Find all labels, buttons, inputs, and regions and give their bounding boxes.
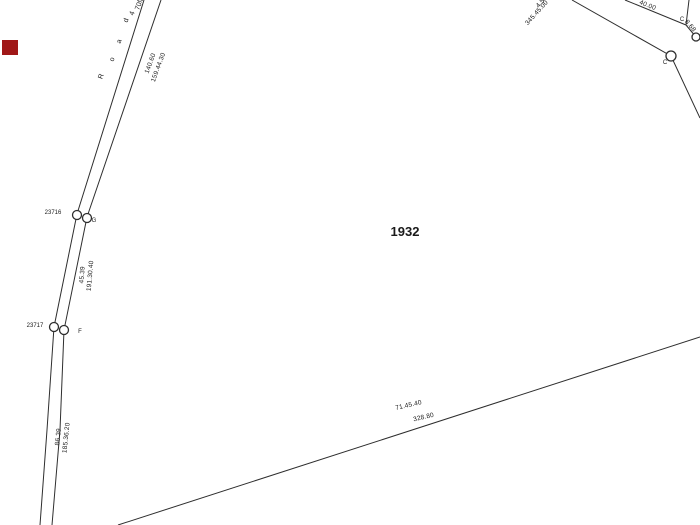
road-name-width-70ft: 70ft xyxy=(134,0,145,11)
survey-monument-circle-f2 xyxy=(60,326,69,335)
survey-monument-circle-g2 xyxy=(83,214,92,223)
plat-map-canvas[interactable]: 1932 R o a d 4 70ft 140.60 159.44.30 45.… xyxy=(0,0,700,525)
top-right-40-line xyxy=(625,0,686,25)
road-name-char-d: d xyxy=(123,17,131,23)
red-corner-marker xyxy=(2,40,18,55)
cadastral-survey-map[interactable]: 1932 R o a d 4 70ft 140.60 159.44.30 45.… xyxy=(0,0,700,525)
parcel-number-label: 1932 xyxy=(391,224,420,239)
point-label-c-upper: C xyxy=(680,17,685,23)
point-label-g: G xyxy=(92,218,97,224)
survey-monument-circle-edge xyxy=(692,33,700,41)
dimension-bottom-bearing: 71.45.40 xyxy=(395,399,423,412)
dimension-topright-short: 8.68 xyxy=(683,19,697,34)
road-name-char-4: 4 xyxy=(129,10,137,16)
dimension-gf-distance: 45.39 xyxy=(78,266,86,284)
road-name-char-o: o xyxy=(109,56,117,62)
monument-id-23716: 23716 xyxy=(45,210,62,216)
survey-monument-circle-g1 xyxy=(73,211,82,220)
point-label-f: F xyxy=(78,329,82,335)
monument-id-23717: 23717 xyxy=(27,323,44,329)
road-name-char-r: R xyxy=(97,73,105,80)
dimension-topright-40: 40.00 xyxy=(638,0,657,12)
point-label-c-lower: C xyxy=(663,60,668,66)
dimension-belowf-bearing: 185.36.20 xyxy=(61,422,71,453)
survey-monument-circle-f1 xyxy=(50,323,59,332)
road-name-char-a: a xyxy=(116,38,124,44)
dimension-bottom-distance: 328.80 xyxy=(413,412,435,424)
survey-monument-circle-c xyxy=(666,51,676,61)
bottom-boundary-line xyxy=(118,337,700,525)
dimension-gf-bearing: 191.30.40 xyxy=(86,260,96,291)
